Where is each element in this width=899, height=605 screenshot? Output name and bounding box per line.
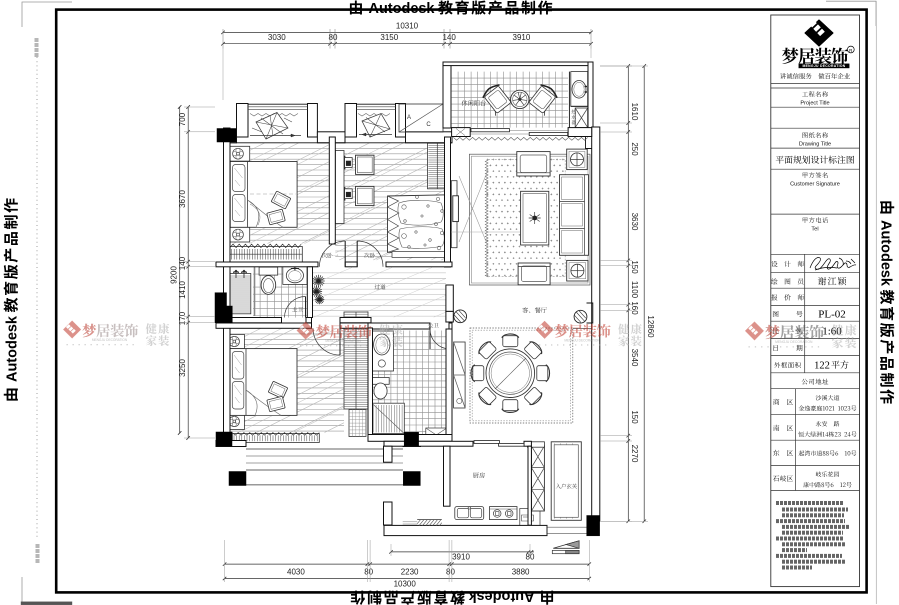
svg-text:3540: 3540 (630, 349, 639, 367)
svg-text:1100: 1100 (630, 281, 639, 299)
svg-text:3630: 3630 (630, 213, 639, 231)
svg-text:4030: 4030 (287, 568, 305, 577)
svg-text:Tel: Tel (811, 227, 818, 233)
svg-text:Autodesk: Autodesk (878, 220, 894, 287)
svg-text:MENGJU DECORATION: MENGJU DECORATION (92, 338, 128, 342)
svg-text:150: 150 (630, 410, 639, 424)
svg-text:MENGJU DECORATION: MENGJU DECORATION (325, 339, 361, 343)
svg-text:700: 700 (178, 112, 187, 126)
svg-text:Drawing Title: Drawing Title (799, 142, 831, 148)
svg-text:10310: 10310 (396, 22, 419, 31)
svg-text:3670: 3670 (178, 190, 187, 208)
svg-text:MENGJU DECORATION: MENGJU DECORATION (775, 340, 813, 344)
svg-text:80: 80 (446, 568, 455, 577)
svg-text:A: A (407, 115, 411, 121)
svg-text:250: 250 (630, 142, 639, 156)
svg-text:PL-02: PL-02 (818, 309, 846, 321)
svg-text:80: 80 (364, 568, 373, 577)
svg-text:122: 122 (814, 361, 830, 372)
svg-text:10300: 10300 (394, 580, 417, 589)
svg-text:Customer Signature: Customer Signature (790, 182, 840, 188)
svg-text:2230: 2230 (401, 568, 419, 577)
svg-text:Project Title: Project Title (800, 101, 829, 107)
svg-text:1410: 1410 (178, 281, 187, 299)
svg-text:C: C (426, 122, 431, 128)
svg-text:3030: 3030 (268, 33, 286, 42)
svg-text:140: 140 (178, 256, 187, 270)
svg-text:140: 140 (443, 33, 457, 42)
svg-text:12860: 12860 (646, 315, 655, 338)
svg-text:2270: 2270 (630, 445, 639, 463)
svg-text:3880: 3880 (512, 568, 530, 577)
svg-text:3150: 3150 (380, 33, 398, 42)
svg-text:Autodesk: Autodesk (369, 1, 436, 17)
svg-text:3910: 3910 (452, 553, 470, 562)
svg-text:170: 170 (178, 311, 187, 325)
svg-text:3910: 3910 (513, 33, 531, 42)
svg-text:160: 160 (630, 301, 639, 315)
svg-text:80: 80 (526, 553, 535, 562)
svg-text:Autodesk: Autodesk (468, 588, 535, 604)
svg-text:MENGJU DECORATION: MENGJU DECORATION (802, 64, 845, 68)
svg-text:1610: 1610 (630, 103, 639, 121)
svg-text:MENGJU DECORATION: MENGJU DECORATION (564, 338, 600, 342)
svg-text:Autodesk: Autodesk (5, 315, 21, 382)
svg-text:150: 150 (630, 260, 639, 274)
svg-text:3250: 3250 (178, 359, 187, 377)
